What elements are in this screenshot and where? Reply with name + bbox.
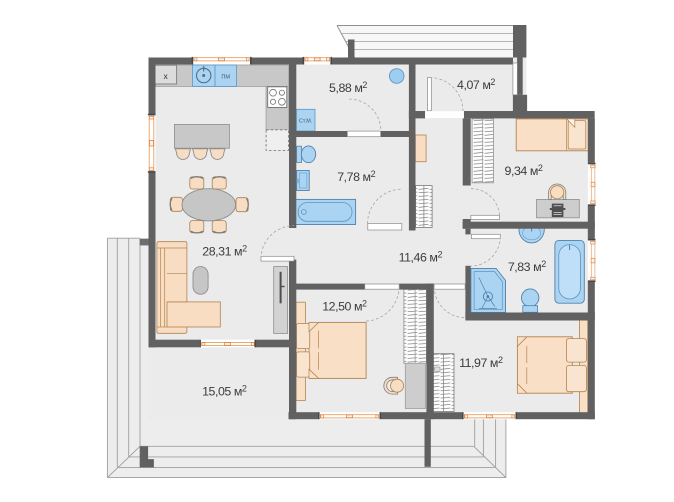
svg-text:28,31 м2: 28,31 м2	[202, 244, 247, 259]
svg-text:ПМ: ПМ	[221, 74, 230, 80]
svg-text:7,83 м2: 7,83 м2	[508, 259, 546, 274]
svg-text:11,46 м2: 11,46 м2	[399, 250, 443, 265]
svg-text:7,78 м2: 7,78 м2	[337, 169, 375, 184]
svg-text:Ст.М.: Ст.М.	[299, 119, 312, 125]
svg-text:15,05 м2: 15,05 м2	[202, 384, 247, 399]
svg-text:x: x	[164, 71, 169, 81]
svg-text:9,34 м2: 9,34 м2	[505, 163, 543, 178]
svg-text:12,50 м2: 12,50 м2	[322, 298, 367, 313]
svg-text:5,88 м2: 5,88 м2	[329, 80, 367, 95]
svg-text:4,07 м2: 4,07 м2	[457, 77, 495, 92]
svg-text:11,97 м2: 11,97 м2	[459, 355, 503, 370]
